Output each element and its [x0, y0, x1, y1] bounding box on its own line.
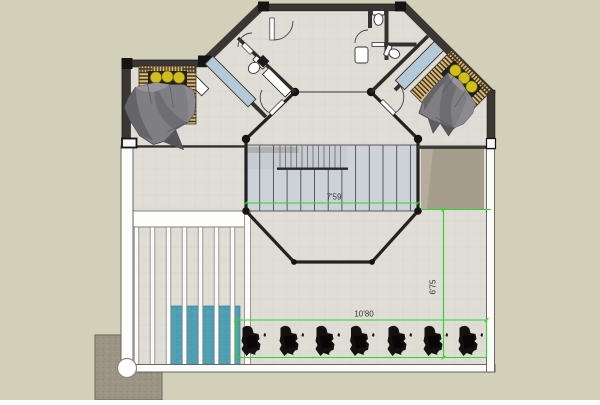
- svg-text:7'59: 7'59: [327, 193, 342, 202]
- svg-text:10'80: 10'80: [354, 310, 374, 319]
- svg-text:6'75: 6'75: [429, 279, 438, 294]
